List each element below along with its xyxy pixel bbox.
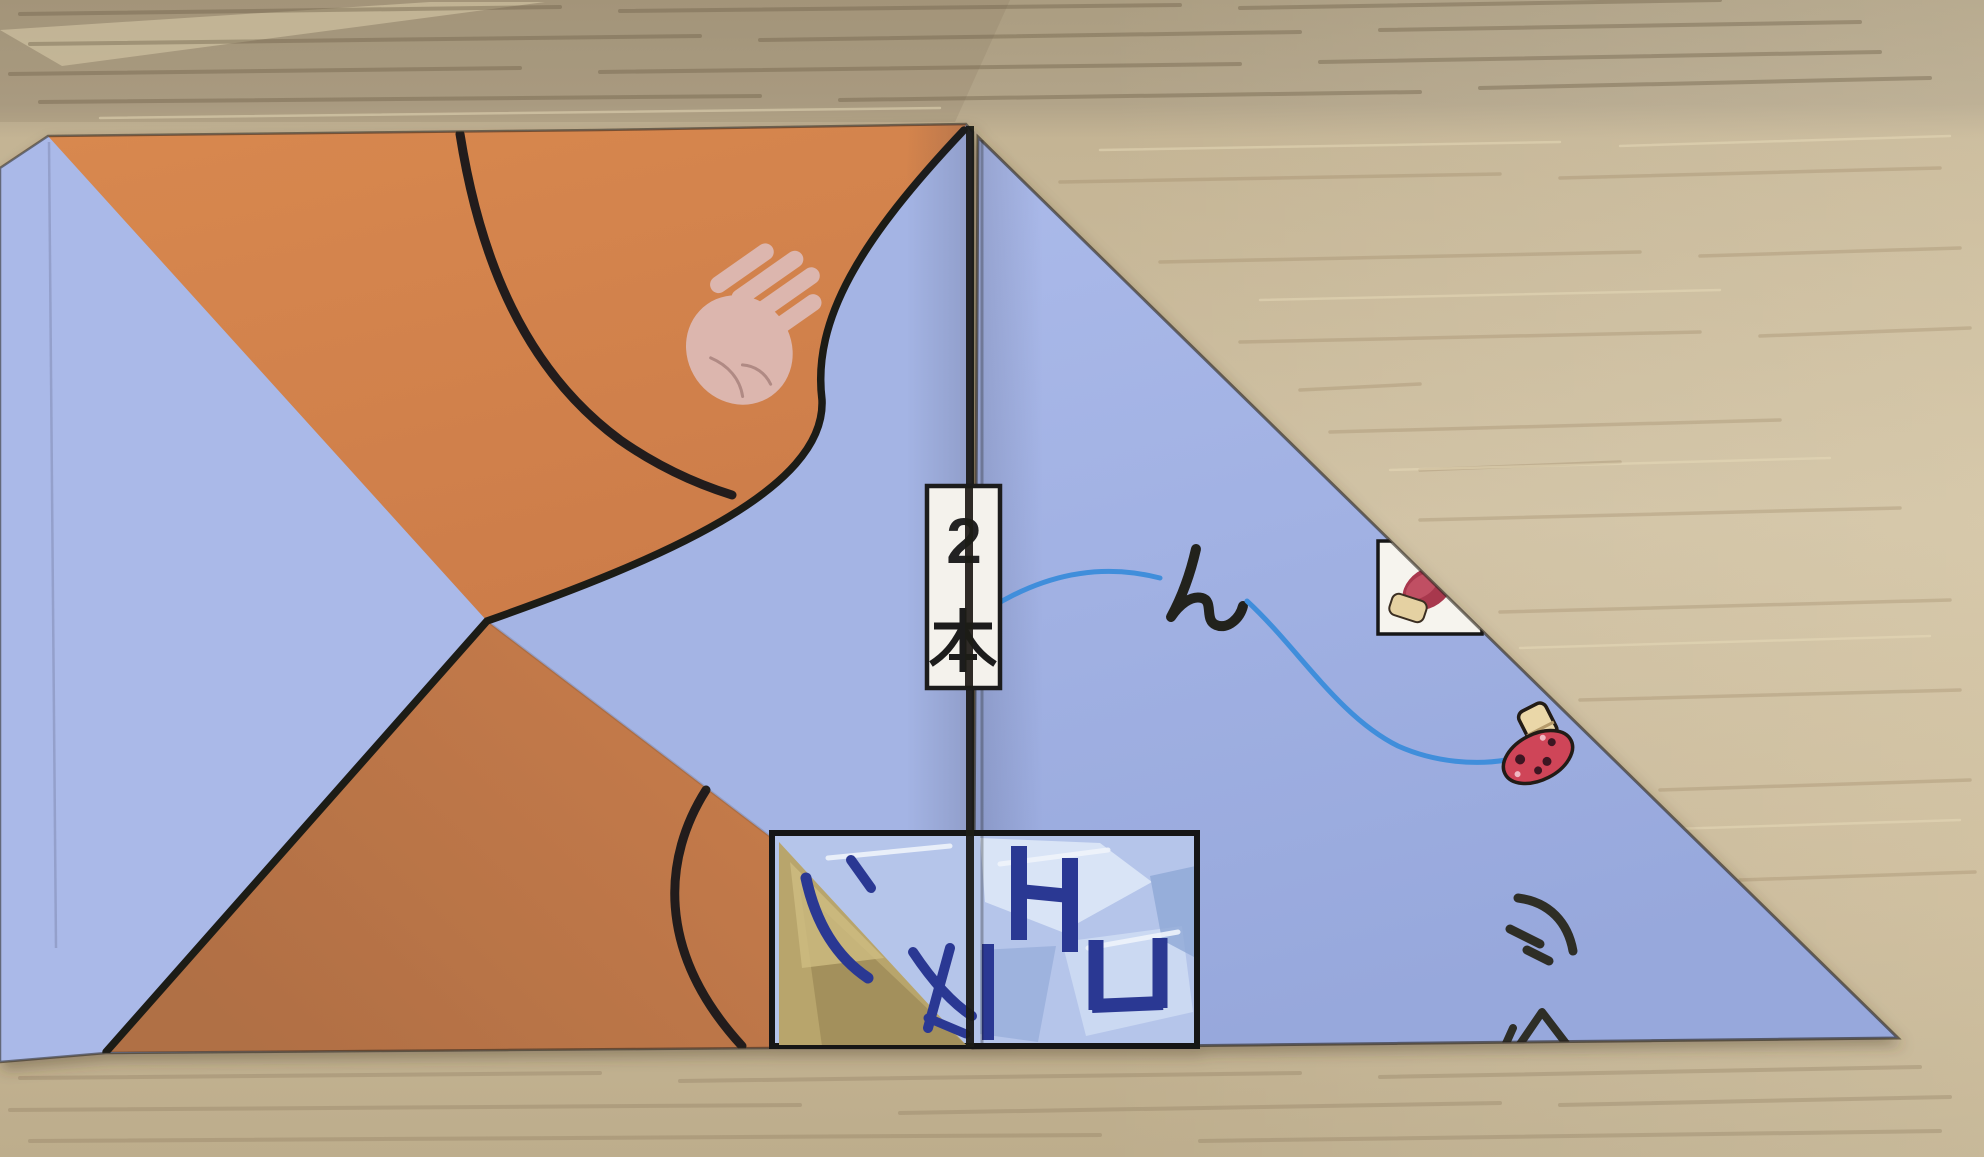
photo-of-folded-origami: ん シ ク — [0, 0, 1984, 1157]
count-number: 2 — [946, 505, 982, 577]
wood-dark-plank-top-left — [0, 0, 1010, 122]
ice-picture-frame: H U — [772, 833, 1197, 1046]
count-label-box: 2 本 — [927, 486, 1000, 688]
